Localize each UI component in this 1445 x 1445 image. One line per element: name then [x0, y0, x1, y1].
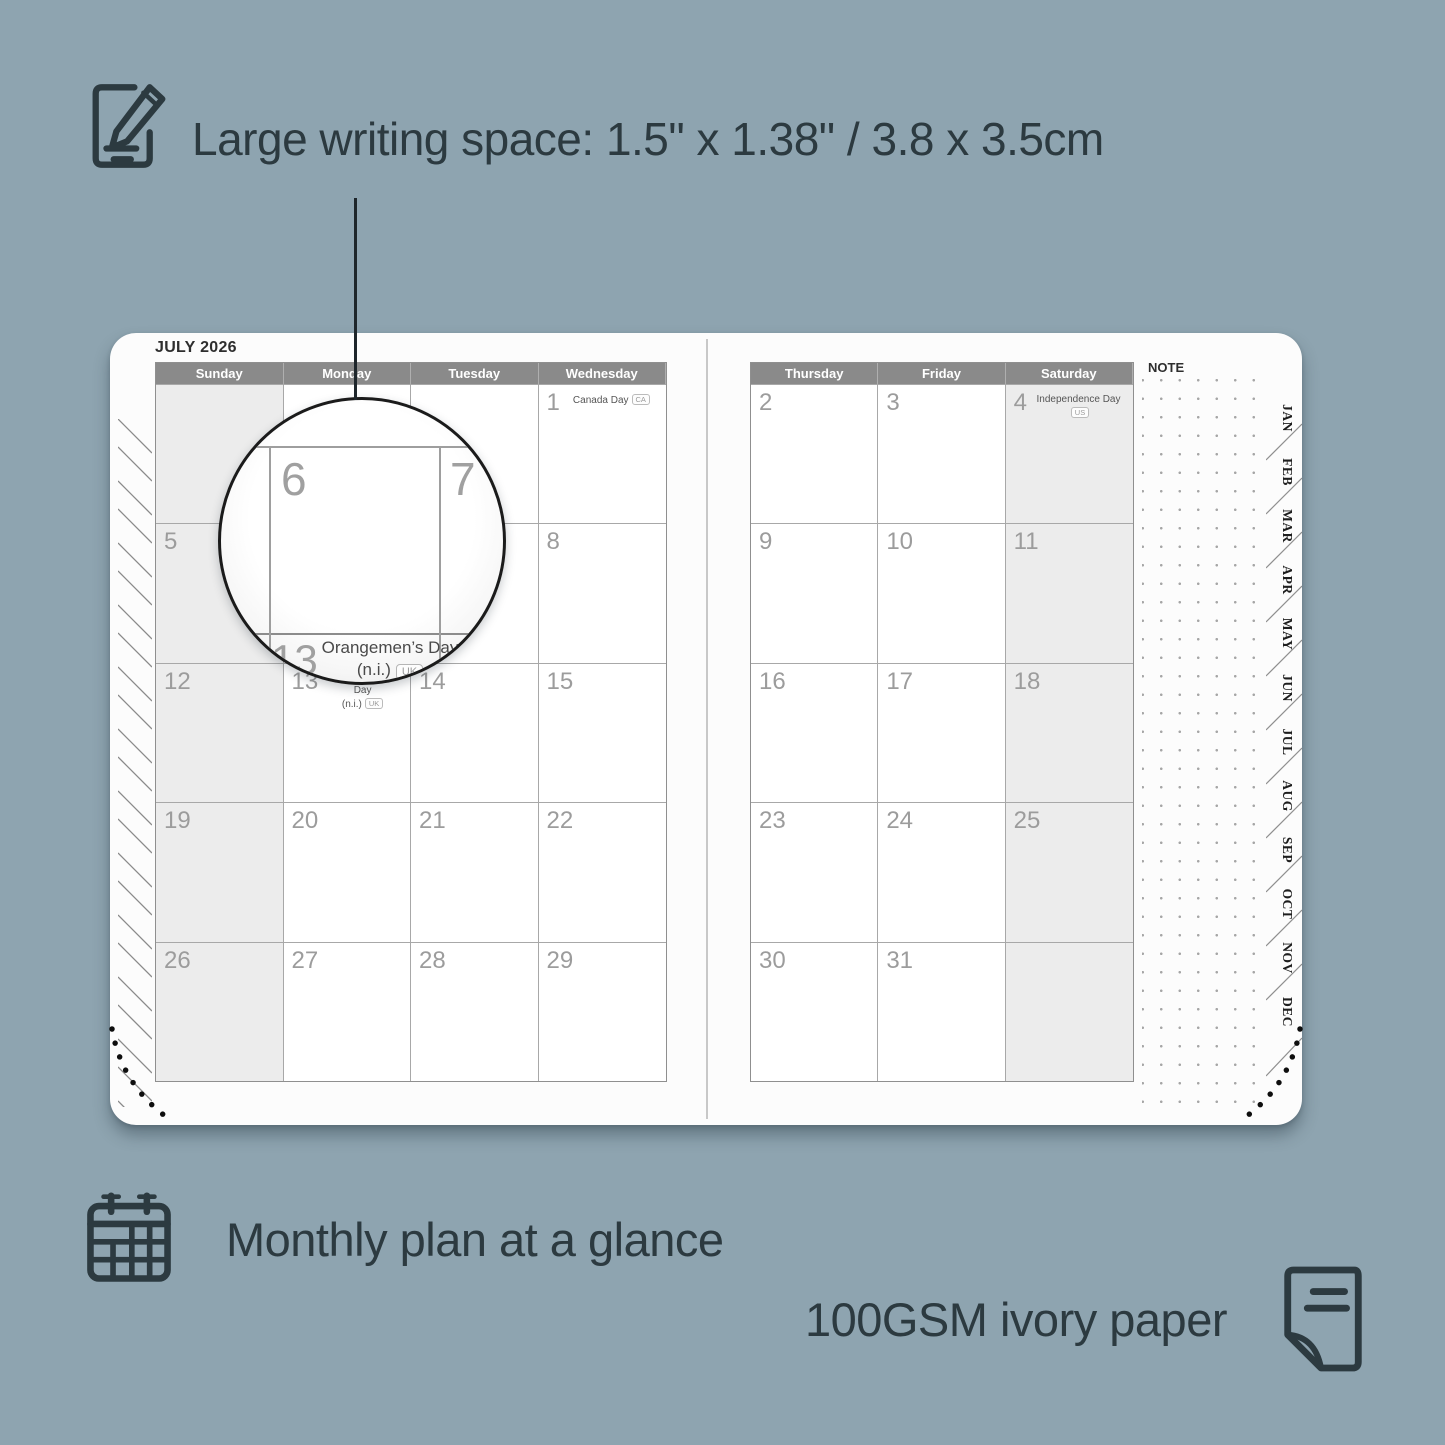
day-number: 20: [292, 808, 319, 833]
day-number: 18: [1014, 669, 1041, 694]
holiday-event: Canada DayCA: [565, 394, 658, 408]
month-tab-jul: JUL: [1280, 728, 1295, 755]
day-cell-15: 15: [539, 663, 667, 802]
day-number: 5: [164, 529, 177, 554]
day-number: 24: [886, 808, 913, 833]
day-number: 1: [547, 390, 560, 415]
day-cell-29: 29: [539, 942, 667, 1081]
day-cell-1: 1Canada DayCA: [539, 384, 667, 523]
day-cell-31: 31: [878, 942, 1005, 1081]
day-cell-17: 17: [878, 663, 1005, 802]
day-number: 22: [547, 808, 574, 833]
day-cell-16: 16: [751, 663, 878, 802]
magnified-day-number: 7: [450, 456, 476, 502]
day-number: 12: [164, 669, 191, 694]
magnified-day-number: 6: [281, 456, 307, 502]
page-fold-line: [706, 339, 708, 1119]
month-tab-nov: NOV: [1280, 942, 1295, 974]
month-title: JULY 2026: [155, 339, 237, 357]
day-cell-19: 19: [156, 802, 284, 941]
day-cell-25: 25: [1006, 802, 1133, 941]
month-tab-jan: JAN: [1280, 404, 1295, 432]
day-number: 31: [886, 948, 913, 973]
day-number: 23: [759, 808, 786, 833]
country-badge: UK: [365, 698, 383, 709]
day-cell-30: 30: [751, 942, 878, 1081]
magnified-gridline: [221, 633, 503, 635]
month-tab-oct: OCT: [1280, 889, 1295, 920]
day-number: 30: [759, 948, 786, 973]
month-tab-may: MAY: [1280, 618, 1295, 651]
day-number: 16: [759, 669, 786, 694]
holiday-event: Independence DayUS: [1032, 394, 1125, 420]
day-cell-9: 9: [751, 523, 878, 662]
day-header-friday: Friday: [878, 363, 1005, 384]
day-number: 3: [886, 390, 899, 415]
day-cell-22: 22: [539, 802, 667, 941]
day-header-monday: Monday: [284, 363, 412, 384]
day-number: 11: [1014, 529, 1039, 554]
day-cell-12: 12: [156, 663, 284, 802]
day-number: 17: [886, 669, 913, 694]
day-cell-10: 10: [878, 523, 1005, 662]
month-tabs: JANFEBMARAPRMAYJUNJULAUGSEPOCTNOVDEC: [1266, 388, 1302, 1088]
day-number: 10: [886, 529, 913, 554]
day-cell-24: 24: [878, 802, 1005, 941]
month-tab-mar: MAR: [1280, 509, 1295, 543]
note-dot-grid: [1142, 363, 1268, 1111]
day-number: 2: [759, 390, 772, 415]
day-cell-11: 11: [1006, 523, 1133, 662]
day-number: 21: [419, 808, 446, 833]
callout-connector-line: [354, 198, 357, 400]
day-header-thursday: Thursday: [751, 363, 878, 384]
calendar-grid-right: ThursdayFridaySaturday234Independence Da…: [750, 362, 1134, 1082]
feature-monthly-plan-label: Monthly plan at a glance: [226, 1212, 724, 1267]
day-cell-23: 23: [751, 802, 878, 941]
day-cell-empty: [1006, 942, 1133, 1081]
day-number: 28: [419, 948, 446, 973]
day-cell-8: 8: [539, 523, 667, 662]
corner-dotted-arc-left: [108, 1021, 228, 1125]
month-tab-aug: AUG: [1280, 780, 1295, 812]
magnified-event-badge: UK: [396, 664, 423, 680]
month-tab-sep: SEP: [1280, 837, 1295, 863]
day-number: 15: [547, 669, 574, 694]
day-number: 8: [547, 529, 560, 554]
page-edge-hatch: [118, 419, 152, 1107]
day-cell-14: 14: [411, 663, 539, 802]
month-tab-jun: JUN: [1280, 674, 1295, 702]
country-badge: CA: [632, 394, 650, 405]
day-number: 4: [1014, 390, 1027, 415]
note-label: NOTE: [1148, 360, 1184, 375]
day-number: 25: [1014, 808, 1041, 833]
day-cell-20: 20: [284, 802, 412, 941]
day-number: 27: [292, 948, 319, 973]
month-tab-feb: FEB: [1280, 458, 1295, 486]
day-cell-3: 3: [878, 384, 1005, 523]
magnified-event: Orangemen’s Day (n.i.)UK: [301, 637, 479, 681]
feature-writing-space-label: Large writing space: 1.5" x 1.38" / 3.8 …: [192, 112, 1104, 166]
day-number: 29: [547, 948, 574, 973]
day-cell-27: 27: [284, 942, 412, 1081]
day-header-sunday: Sunday: [156, 363, 284, 384]
day-cell-18: 18: [1006, 663, 1133, 802]
paper-icon: [1274, 1264, 1372, 1374]
day-header-tuesday: Tuesday: [411, 363, 539, 384]
corner-dotted-arc-right: [1184, 1021, 1304, 1125]
day-number: 19: [164, 808, 191, 833]
calendar-icon: [82, 1192, 176, 1286]
day-header-saturday: Saturday: [1006, 363, 1133, 384]
feature-paper-label: 100GSM ivory paper: [805, 1292, 1227, 1347]
magnified-event-text: Orangemen’s Day (n.i.): [322, 638, 459, 679]
day-number: 9: [759, 529, 772, 554]
magnified-gridline: [221, 446, 503, 448]
country-badge: US: [1071, 407, 1089, 418]
day-cell-4: 4Independence DayUS: [1006, 384, 1133, 523]
day-cell-2: 2: [751, 384, 878, 523]
day-number: 26: [164, 948, 191, 973]
magnifier-circle: 6 7 13 Orangemen’s Day (n.i.)UK: [218, 397, 506, 685]
pencil-note-icon: [84, 80, 174, 172]
day-cell-28: 28: [411, 942, 539, 1081]
day-cell-21: 21: [411, 802, 539, 941]
month-tab-apr: APR: [1280, 565, 1295, 594]
day-header-wednesday: Wednesday: [539, 363, 667, 384]
